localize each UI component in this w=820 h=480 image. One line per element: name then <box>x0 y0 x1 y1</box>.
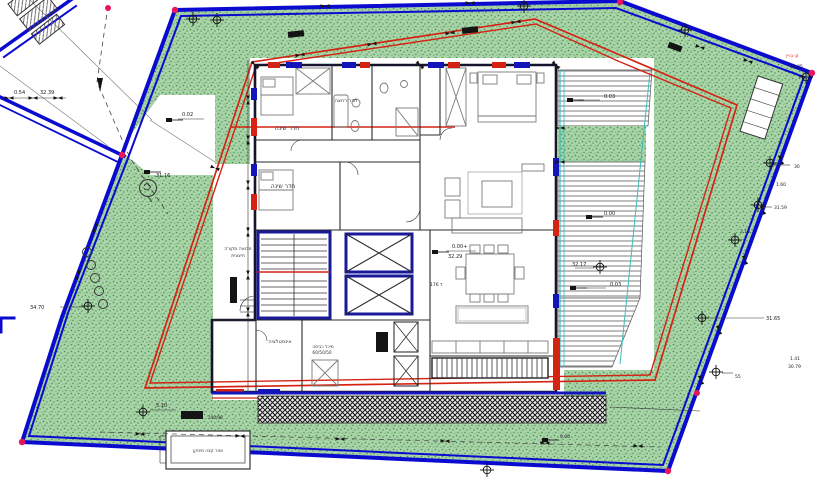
spot-level-1: 31.16 <box>156 173 170 179</box>
staircase <box>258 232 330 318</box>
dim-16: 2.10 <box>740 229 750 235</box>
spot-level-7: 0.00+ <box>452 244 467 250</box>
spot-level-8: 32.29 <box>448 254 462 260</box>
spot-level-15: 31.59 <box>774 205 787 211</box>
label-plumbing: אינסטלציה <box>268 339 291 345</box>
spot-level-23: 0.00 <box>560 434 570 440</box>
spot-level-0: 0.02 <box>182 112 193 118</box>
spot-level-17: 31.65 <box>766 316 780 322</box>
dim-4: 32.39 <box>40 90 54 96</box>
label-laundry: מיכל כביסה <box>312 345 333 350</box>
gate-block <box>181 411 203 419</box>
dim-13: 30 <box>794 164 800 170</box>
label-bedroom-1: חדר שינה <box>275 125 299 132</box>
building-line-label: קו בניין <box>786 53 799 58</box>
label-utility-structure: אזור קצה מיתקן <box>193 449 223 454</box>
label-laundry-size: 60/50/50 <box>312 350 332 356</box>
plot-number: ד 176 <box>430 282 443 288</box>
dim-14: 1.60 <box>776 182 786 188</box>
walkway <box>212 393 606 423</box>
spot-level-20: 30.79 <box>788 364 801 370</box>
dim-19: 1.41 <box>790 356 800 362</box>
label-bathroom: חדר רחצה <box>335 98 358 104</box>
wall-pier <box>230 277 237 303</box>
spot-level-6: 0.00 <box>604 211 615 217</box>
window-band <box>432 358 548 378</box>
spot-level-5: 0.03 <box>604 94 615 100</box>
spot-level-12: 31.05 <box>790 64 803 70</box>
dim-3: 0.54 <box>14 90 25 96</box>
spot-level-9: 32.17 <box>572 262 586 268</box>
spot-level-2: 34.70 <box>30 305 44 311</box>
dim-21: 5.10 <box>156 403 167 409</box>
label-entry-lobby-1: מבואה מקורה <box>224 247 251 252</box>
label-bedroom-2: חדר שינה <box>271 183 295 190</box>
site-plan-drawing: חדר שינה חדר רחצה חדר שינה מבואה מקורה ח… <box>0 0 820 480</box>
label-entry-lobby-2: חיצונית <box>231 254 245 259</box>
dim-18: 55 <box>735 374 741 380</box>
floor-plan-svg: חדר שינה חדר רחצה חדר שינה מבואה מקורה ח… <box>0 0 820 480</box>
spot-level-10: 0.03 <box>610 282 621 288</box>
dim-22: 240/98 <box>208 415 223 420</box>
